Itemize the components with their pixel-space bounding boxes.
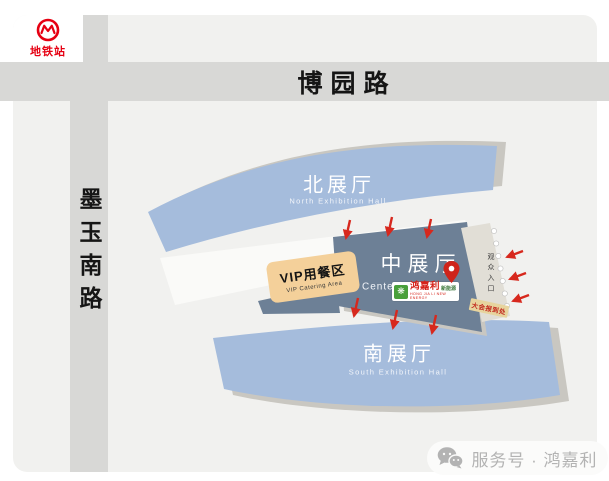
footer-label: 服务号 · 鸿嘉利 xyxy=(471,446,597,471)
location-pin-icon xyxy=(442,260,461,286)
footer-watermark: 服务号 · 鸿嘉利 xyxy=(427,441,608,475)
brand-suffix: 新能源 xyxy=(441,287,456,292)
north-hall-sublabel: North Exhibition Hall xyxy=(289,197,386,206)
metro-station-label: 地铁站 xyxy=(30,43,66,59)
metro-logo-icon xyxy=(36,18,60,42)
flow-arrows-east-entrance xyxy=(507,251,529,301)
south-hall-label: 南展厅 xyxy=(363,338,435,367)
metro-station-badge: 地铁站 xyxy=(13,15,83,62)
brand-name: 鸿嘉利 xyxy=(410,282,440,292)
north-hall-label: 北展厅 xyxy=(303,169,375,198)
road-label-left: 墨玉南路 xyxy=(72,187,106,319)
road-label-top: 博园路 xyxy=(297,64,396,100)
south-hall-sublabel: South Exhibition Hall xyxy=(349,368,448,377)
venue-map: 地铁站 博园路 墨玉南路 北展厅 North Exhibition Hall 中… xyxy=(0,0,609,481)
brand-name-en: HONG JIA LI NEW ENERGY xyxy=(410,293,459,300)
visitor-entrance-label: 观众入口 xyxy=(485,253,495,295)
wechat-icon xyxy=(437,447,464,469)
brand-logo-icon: ❋ xyxy=(394,285,408,299)
